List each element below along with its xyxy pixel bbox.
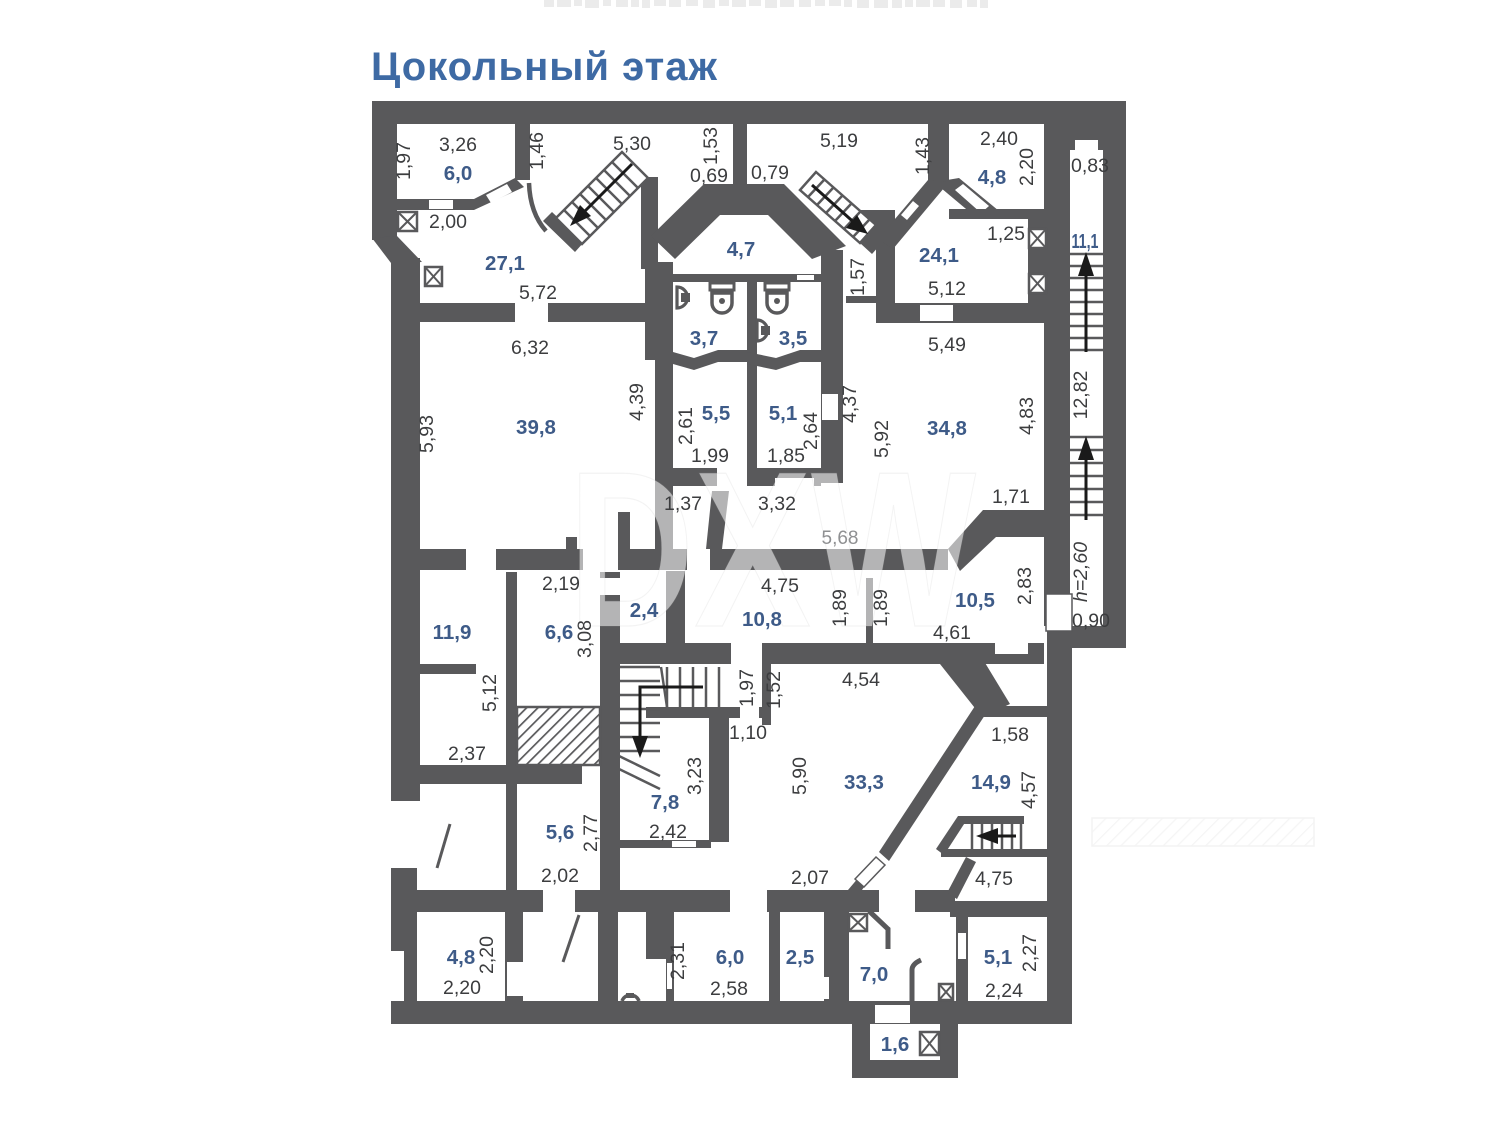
- svg-text:h=2,60: h=2,60: [1070, 542, 1092, 602]
- svg-text:1,46: 1,46: [526, 132, 548, 170]
- svg-text:2,58: 2,58: [710, 978, 748, 1000]
- svg-text:2,61: 2,61: [675, 407, 697, 445]
- svg-text:5,5: 5,5: [702, 402, 731, 425]
- svg-text:0,90: 0,90: [1072, 610, 1110, 632]
- svg-text:4,54: 4,54: [842, 669, 880, 691]
- svg-text:1,37: 1,37: [664, 493, 702, 515]
- svg-text:2,27: 2,27: [1019, 934, 1041, 972]
- svg-text:3,32: 3,32: [758, 493, 796, 515]
- svg-text:4,8: 4,8: [447, 946, 476, 969]
- svg-text:4,75: 4,75: [975, 868, 1013, 890]
- svg-text:Цокольный этаж: Цокольный этаж: [371, 45, 718, 89]
- svg-text:7,0: 7,0: [860, 963, 889, 986]
- svg-text:2,02: 2,02: [541, 865, 579, 887]
- svg-text:5,1: 5,1: [769, 402, 798, 425]
- svg-text:1,89: 1,89: [829, 589, 851, 627]
- svg-text:5,93: 5,93: [416, 415, 438, 453]
- svg-text:1,99: 1,99: [691, 445, 729, 467]
- svg-text:2,83: 2,83: [1014, 567, 1036, 605]
- svg-text:27,1: 27,1: [485, 252, 525, 275]
- svg-text:5,12: 5,12: [479, 674, 501, 712]
- svg-text:1,6: 1,6: [881, 1033, 910, 1056]
- svg-text:1,10: 1,10: [729, 722, 767, 744]
- svg-text:1,43: 1,43: [912, 137, 934, 175]
- svg-text:1,52: 1,52: [763, 671, 785, 709]
- svg-text:4,61: 4,61: [933, 622, 971, 644]
- svg-text:11,1: 11,1: [1072, 230, 1099, 253]
- svg-text:2,20: 2,20: [443, 977, 481, 999]
- svg-text:5,90: 5,90: [789, 757, 811, 795]
- svg-text:2,07: 2,07: [791, 867, 829, 889]
- svg-text:3,08: 3,08: [574, 620, 596, 658]
- svg-text:2,5: 2,5: [786, 946, 815, 969]
- svg-text:7,8: 7,8: [651, 791, 680, 814]
- svg-text:3,7: 3,7: [690, 327, 719, 350]
- svg-text:4,75: 4,75: [761, 575, 799, 597]
- svg-text:1,89: 1,89: [870, 589, 892, 627]
- svg-text:0,79: 0,79: [751, 162, 789, 184]
- svg-text:10,8: 10,8: [742, 608, 782, 631]
- svg-text:11,9: 11,9: [433, 621, 472, 644]
- svg-text:2,4: 2,4: [630, 599, 659, 622]
- svg-text:5,72: 5,72: [519, 282, 557, 304]
- svg-text:33,3: 33,3: [844, 771, 884, 794]
- svg-text:5,92: 5,92: [871, 420, 893, 458]
- svg-text:6,6: 6,6: [545, 621, 574, 644]
- svg-text:1,71: 1,71: [992, 486, 1030, 508]
- svg-text:6,0: 6,0: [716, 946, 745, 969]
- svg-text:4,83: 4,83: [1016, 397, 1038, 435]
- svg-text:5,1: 5,1: [984, 946, 1013, 969]
- svg-text:3,5: 3,5: [779, 327, 808, 350]
- svg-text:5,19: 5,19: [820, 130, 858, 152]
- svg-text:5,30: 5,30: [613, 133, 651, 155]
- svg-text:1,85: 1,85: [767, 445, 805, 467]
- svg-text:3,23: 3,23: [684, 757, 706, 795]
- svg-text:2,00: 2,00: [429, 211, 467, 233]
- svg-text:5,6: 5,6: [546, 821, 575, 844]
- svg-text:2,20: 2,20: [1016, 148, 1038, 186]
- svg-text:0,69: 0,69: [690, 165, 728, 187]
- svg-text:4,39: 4,39: [626, 383, 648, 421]
- svg-text:3,26: 3,26: [439, 134, 477, 156]
- svg-text:2,37: 2,37: [448, 743, 486, 765]
- svg-text:6,0: 6,0: [444, 162, 473, 185]
- svg-text:2,77: 2,77: [580, 814, 602, 852]
- svg-text:5,68: 5,68: [822, 528, 859, 549]
- svg-text:1,97: 1,97: [736, 669, 758, 707]
- svg-text:34,8: 34,8: [927, 417, 967, 440]
- svg-text:1,97: 1,97: [393, 142, 415, 180]
- svg-text:10,5: 10,5: [955, 589, 995, 612]
- svg-text:5,49: 5,49: [928, 334, 966, 356]
- svg-text:5,12: 5,12: [928, 278, 966, 300]
- svg-text:1,53: 1,53: [700, 127, 722, 165]
- svg-text:4,57: 4,57: [1018, 771, 1040, 809]
- svg-text:4,8: 4,8: [978, 166, 1007, 189]
- svg-text:4,7: 4,7: [727, 238, 756, 261]
- svg-text:2,24: 2,24: [985, 980, 1023, 1002]
- svg-text:2,19: 2,19: [542, 573, 580, 595]
- svg-text:1,57: 1,57: [847, 258, 869, 296]
- svg-text:24,1: 24,1: [919, 244, 959, 267]
- svg-text:1,58: 1,58: [991, 724, 1029, 746]
- svg-text:14,9: 14,9: [971, 771, 1011, 794]
- svg-text:2,20: 2,20: [476, 936, 498, 974]
- svg-text:2,40: 2,40: [980, 128, 1018, 150]
- svg-text:2,42: 2,42: [649, 821, 687, 843]
- svg-text:1,25: 1,25: [987, 223, 1025, 245]
- svg-text:6,32: 6,32: [511, 337, 549, 359]
- svg-text:39,8: 39,8: [516, 416, 556, 439]
- svg-text:4,37: 4,37: [839, 385, 861, 423]
- svg-text:2,31: 2,31: [667, 942, 689, 980]
- svg-text:0,83: 0,83: [1071, 155, 1109, 177]
- svg-text:12,82: 12,82: [1070, 371, 1092, 420]
